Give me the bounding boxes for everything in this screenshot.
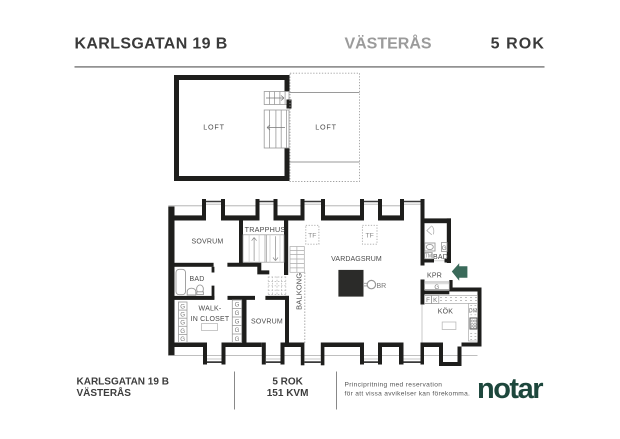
svg-text:TRAPPHUS: TRAPPHUS (245, 225, 286, 234)
svg-text:Principritning med reservation: Principritning med reservation (345, 381, 443, 388)
svg-text:VARDAGSRUM: VARDAGSRUM (331, 256, 382, 263)
svg-text:VÄSTERÅS: VÄSTERÅS (77, 386, 132, 399)
svg-text:TF: TF (308, 233, 316, 240)
svg-text:KPR: KPR (427, 272, 442, 279)
svg-text:G: G (180, 312, 185, 319)
svg-text:BR: BR (377, 283, 387, 290)
svg-text:G: G (180, 304, 185, 311)
svg-text:IN CLOSET: IN CLOSET (191, 316, 230, 323)
svg-text:TF: TF (366, 233, 374, 240)
svg-text:notar: notar (477, 373, 543, 405)
svg-text:151 KVM: 151 KVM (267, 388, 309, 399)
svg-text:G: G (235, 336, 240, 343)
svg-text:KARLSGATAN 19 B: KARLSGATAN 19 B (77, 376, 169, 387)
svg-text:BAD: BAD (190, 276, 205, 283)
svg-text:KÖK: KÖK (438, 308, 454, 316)
svg-text:G: G (235, 302, 240, 309)
svg-text:G: G (180, 320, 185, 327)
svg-text:G: G (442, 245, 447, 252)
svg-text:LOFT: LOFT (203, 123, 225, 132)
svg-text:G: G (180, 328, 185, 335)
svg-text:G: G (235, 319, 240, 326)
svg-text:TM: TM (425, 254, 432, 260)
svg-text:F: F (426, 297, 430, 304)
svg-text:G: G (235, 310, 240, 317)
svg-text:G: G (235, 327, 240, 334)
svg-text:G: G (180, 336, 185, 343)
svg-text:WALK-: WALK- (199, 306, 222, 313)
svg-text:5 ROK: 5 ROK (272, 376, 303, 387)
svg-text:för att vissa avvikelser kan f: för att vissa avvikelser kan förekomma. (345, 390, 471, 397)
svg-text:KARLSGATAN 19 B: KARLSGATAN 19 B (75, 36, 228, 53)
svg-text:DM: DM (468, 309, 477, 315)
svg-text:BAD: BAD (433, 254, 448, 261)
svg-text:BALKONG: BALKONG (295, 273, 304, 310)
svg-text:SOVRUM: SOVRUM (251, 318, 283, 325)
svg-text:LOFT: LOFT (315, 123, 337, 132)
svg-text:VÄSTERÅS: VÄSTERÅS (344, 34, 431, 53)
svg-text:5 ROK: 5 ROK (491, 36, 545, 53)
svg-text:SOVRUM: SOVRUM (192, 239, 224, 246)
svg-text:G: G (434, 284, 439, 291)
